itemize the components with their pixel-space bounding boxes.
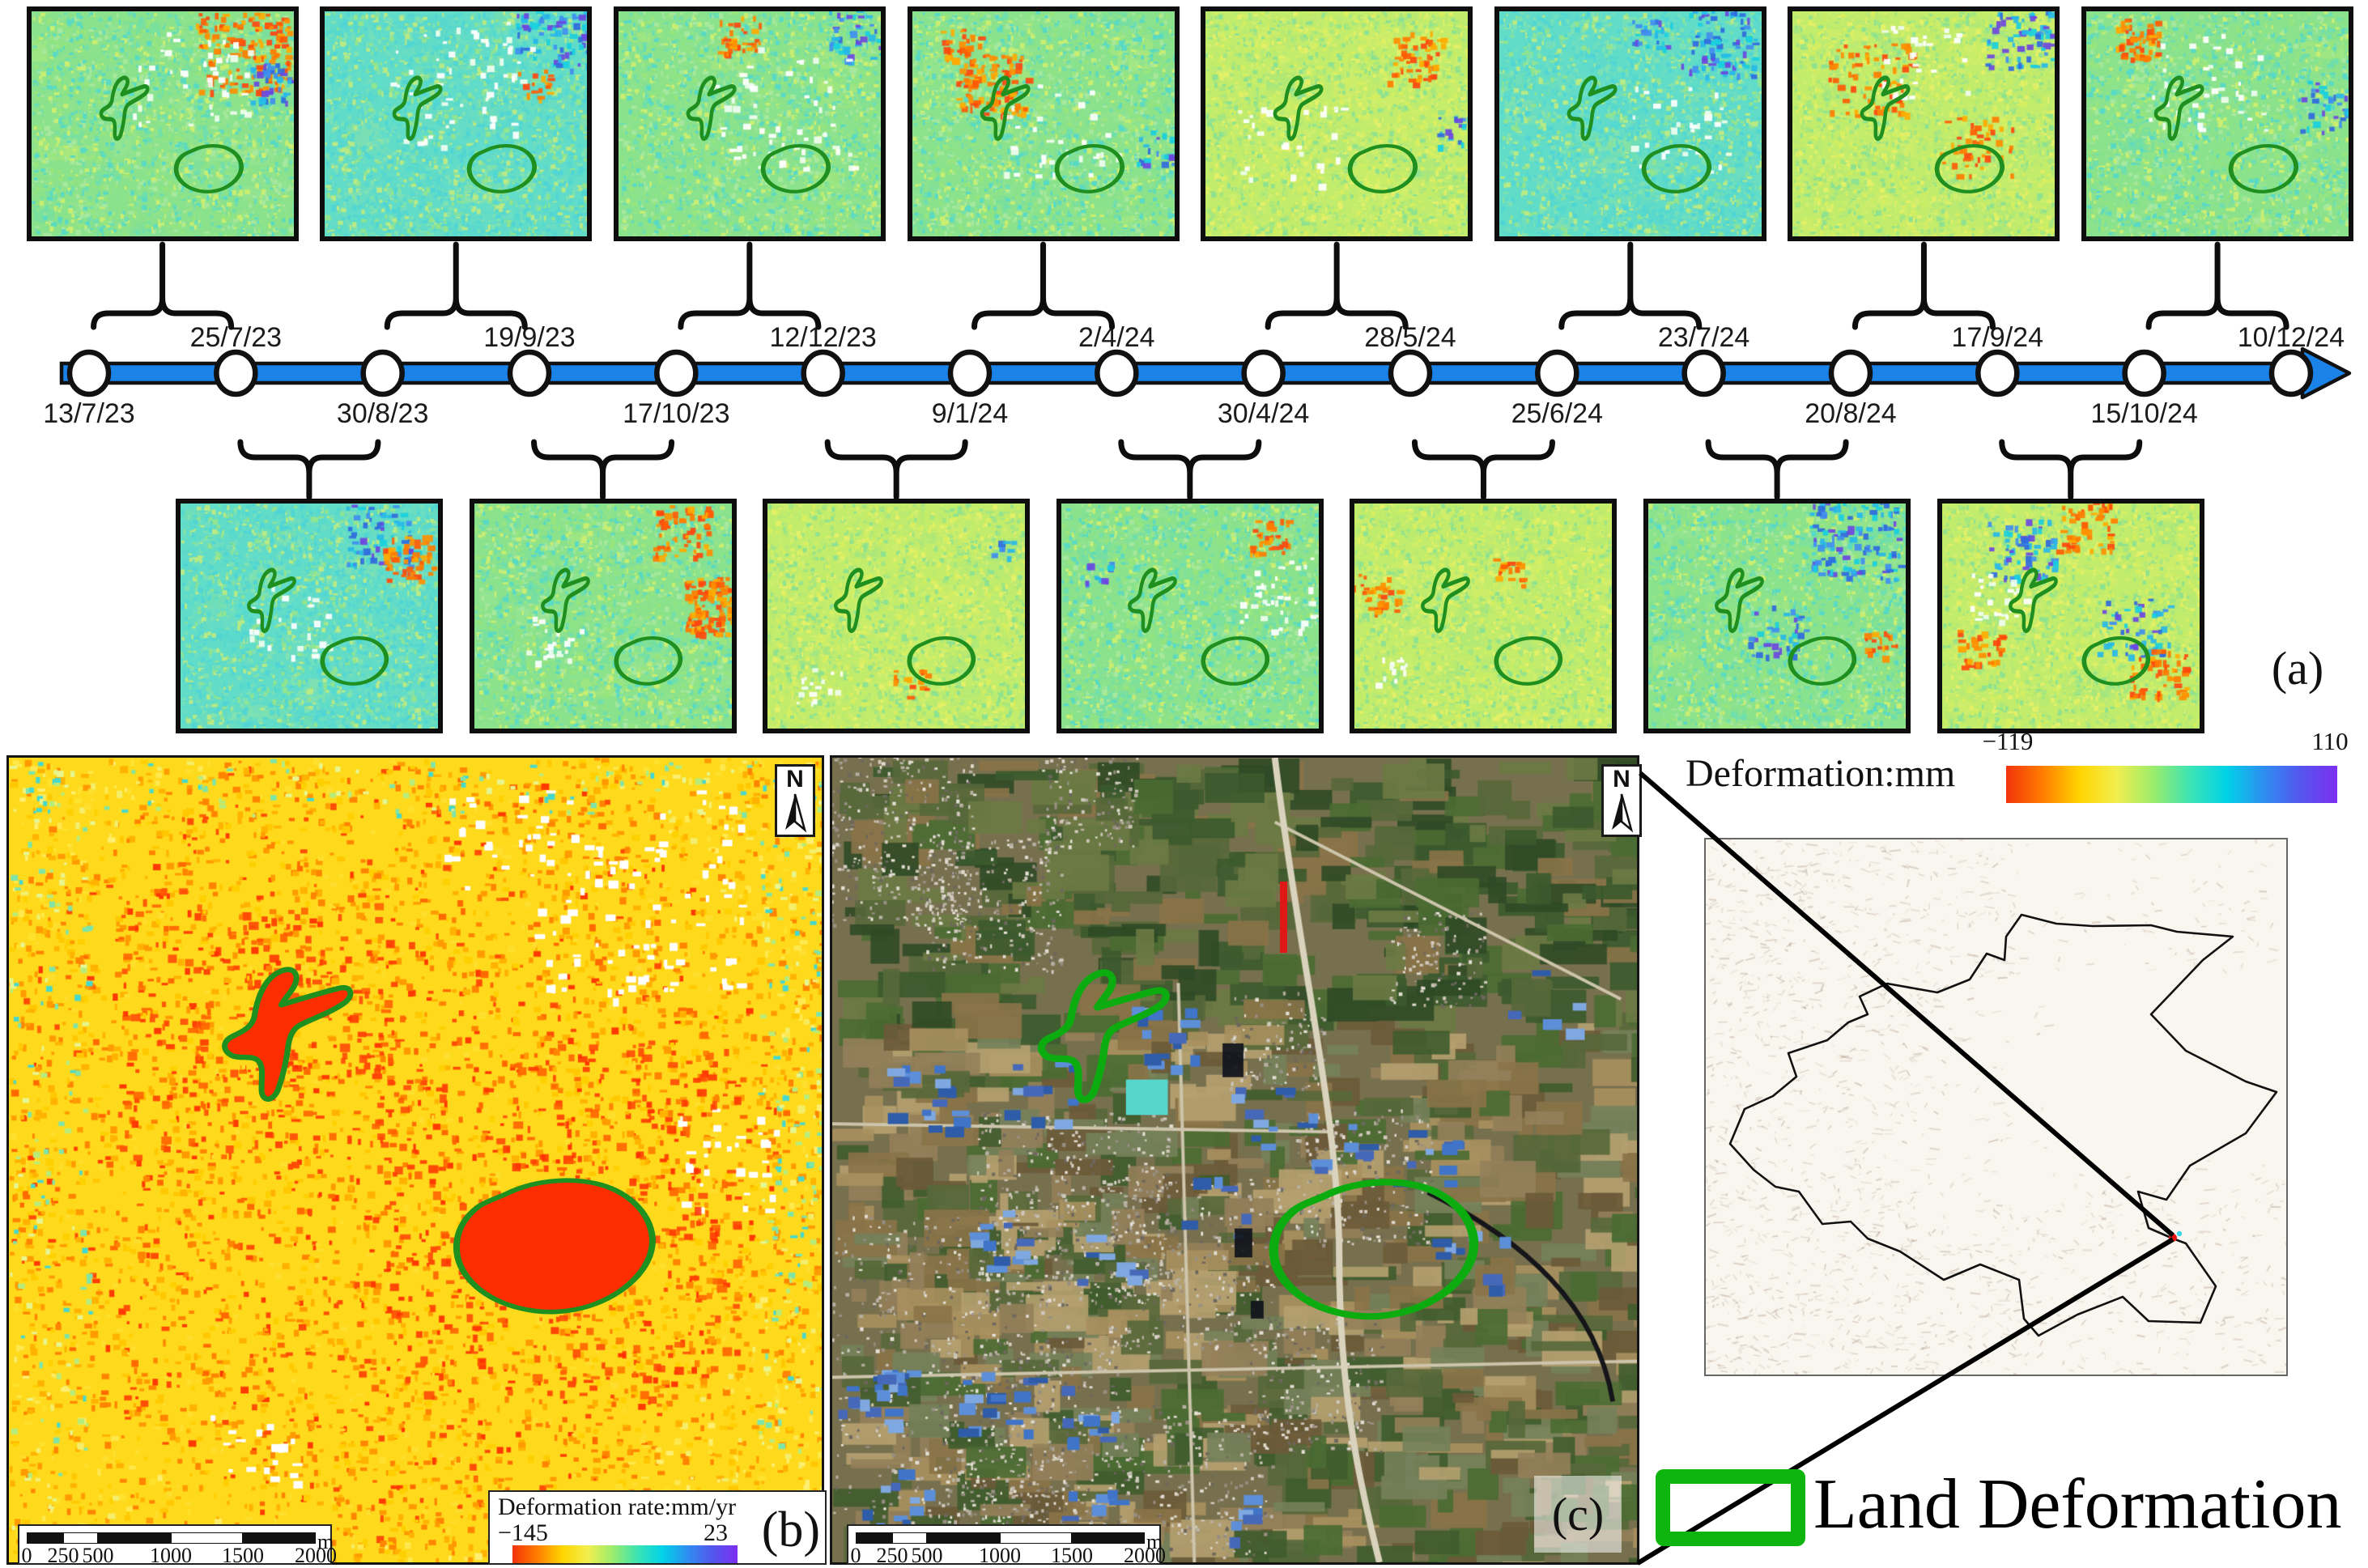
timeline-date: 13/7/23	[8, 398, 170, 430]
north-arrow-icon	[1605, 792, 1638, 833]
timeline-date: 25/7/23	[155, 322, 317, 354]
timeline-date: 17/10/23	[595, 398, 757, 430]
study-area-dot	[2169, 1234, 2177, 1242]
interferogram-map-top	[908, 6, 1180, 241]
brace-bottom	[2002, 442, 2140, 497]
interferogram-map-top	[1494, 6, 1766, 241]
scalebar-tick: 2000	[283, 1544, 348, 1568]
timeline-node	[1244, 352, 1283, 394]
deformation-outlines	[325, 11, 587, 236]
scale-bar: 0250500100015002000m	[18, 1524, 332, 1565]
scalebar-segment	[856, 1532, 892, 1544]
deformation-outlines	[832, 758, 1637, 1562]
interferogram-map-bottom	[1937, 499, 2204, 733]
brace-top	[387, 244, 525, 327]
deformation-outlines	[1792, 11, 2055, 236]
north-arrow-box: N	[775, 764, 815, 837]
interferogram-map-top	[614, 6, 886, 241]
brace-bottom	[534, 442, 672, 497]
timeline-date: 15/10/24	[2064, 398, 2226, 430]
timeline-node	[70, 352, 108, 394]
scalebar-tick: 1000	[138, 1544, 203, 1568]
scalebar-segment	[892, 1532, 927, 1544]
timeline-node	[1978, 352, 2017, 394]
panel-c-label: (c)	[1534, 1476, 1622, 1553]
panel-a-label: (a)	[2241, 641, 2354, 695]
interferogram-map-bottom	[763, 499, 1030, 733]
deformation-outlines	[1061, 504, 1319, 729]
scalebar-tick: 500	[895, 1544, 959, 1568]
timeline-date: 17/9/24	[1916, 322, 2078, 354]
red-route-marker	[1280, 882, 1287, 953]
scalebar-tick: 500	[66, 1544, 130, 1568]
scalebar-segment	[171, 1532, 243, 1544]
scalebar-segment	[27, 1532, 63, 1544]
rate-legend-box: Deformation rate:mm/yr −145 23 (b)	[488, 1490, 827, 1565]
deformation-outlines	[912, 11, 1175, 236]
timeline-node	[1537, 352, 1576, 394]
timeline-node	[657, 352, 695, 394]
interferogram-map-bottom	[470, 499, 737, 733]
timeline-node	[1391, 352, 1430, 394]
insar-time-series-figure: Deformation:mm −119 110 N 02505001000150…	[0, 0, 2368, 1568]
timeline-node	[363, 352, 402, 394]
brace-top	[1562, 244, 1699, 327]
scalebar-segment	[1000, 1532, 1072, 1544]
panel-b-label: (b)	[762, 1502, 820, 1559]
deformation-outlines	[1354, 504, 1612, 729]
deformation-outlines	[181, 504, 438, 729]
deformation-outlines	[767, 504, 1025, 729]
brace-top	[1855, 244, 1992, 327]
province-border	[1730, 915, 2277, 1336]
deformation-outlines	[619, 11, 881, 236]
interferogram-map-top	[1788, 6, 2060, 241]
scalebar-segment	[1072, 1532, 1145, 1544]
interferogram-map-top	[2081, 6, 2353, 241]
timeline-node	[1831, 352, 1870, 394]
interferogram-map-bottom	[1056, 499, 1324, 733]
colorbar-gradient	[2006, 766, 2337, 803]
timeline-date: 30/4/24	[1183, 398, 1345, 430]
scalebar-segment	[98, 1532, 171, 1544]
timeline-node	[1685, 352, 1724, 394]
scalebar-tick: 1500	[210, 1544, 275, 1568]
interferogram-map-top	[1201, 6, 1473, 241]
timeline-bar	[62, 363, 2302, 383]
north-label: N	[786, 767, 804, 792]
scalebar-segment	[927, 1532, 1000, 1544]
timeline-node	[2272, 352, 2311, 394]
rate-legend-gradient	[512, 1545, 738, 1563]
timeline-arrowhead	[2302, 349, 2349, 397]
rate-legend-title: Deformation rate:mm/yr	[498, 1494, 736, 1521]
brace-top	[1268, 244, 1405, 327]
brace-top	[94, 244, 232, 327]
timeline-date: 19/9/23	[449, 322, 610, 354]
timeline-node	[2125, 352, 2164, 394]
timeline-date: 23/7/24	[1623, 322, 1785, 354]
study-area-secondary-dot	[2177, 1231, 2182, 1236]
scalebar-unit: m	[1146, 1530, 1163, 1554]
deformation-outlines	[1942, 504, 2200, 729]
deformation-outlines	[9, 758, 822, 1562]
interferogram-map-top	[27, 6, 299, 241]
land-deformation-swatch	[1656, 1469, 1805, 1546]
timeline-node	[510, 352, 549, 394]
timeline-node	[950, 352, 989, 394]
deformation-outlines	[2086, 11, 2349, 236]
colorbar-max-value: 110	[2289, 727, 2368, 756]
timeline-node	[1097, 352, 1136, 394]
deformation-outlines	[474, 504, 732, 729]
deformation-outlines	[1499, 11, 1762, 236]
scalebar-tick: 2000	[1112, 1544, 1177, 1568]
deformation-outlines	[32, 11, 294, 236]
land-deformation-label: Land Deformation	[1813, 1464, 2341, 1545]
north-arrow-box: N	[1601, 764, 1642, 837]
scalebar-tick: 1000	[967, 1544, 1032, 1568]
brace-bottom	[240, 442, 378, 497]
scalebar-segment	[63, 1532, 98, 1544]
brace-top	[975, 244, 1112, 327]
scale-bar: 0250500100015002000m	[847, 1524, 1161, 1565]
timeline-date: 30/8/23	[302, 398, 464, 430]
timeline-node	[804, 352, 843, 394]
timeline-node	[216, 352, 255, 394]
brace-bottom	[1414, 442, 1552, 497]
rate-legend-min: −145	[498, 1519, 548, 1547]
brace-top	[2149, 244, 2286, 327]
timeline-date: 12/12/23	[742, 322, 904, 354]
timeline-date: 9/1/24	[889, 398, 1051, 430]
brace-bottom	[1708, 442, 1846, 497]
brace-top	[681, 244, 818, 327]
timeline-date: 10/12/24	[2210, 322, 2368, 354]
scalebar-segment	[243, 1532, 316, 1544]
deformation-outlines	[1205, 11, 1468, 236]
panel-c-satellite-map: N 0250500100015002000m (c)	[830, 755, 1639, 1565]
north-label: N	[1613, 767, 1630, 792]
interferogram-map-bottom	[1643, 499, 1911, 733]
colorbar-title: Deformation:mm	[1686, 751, 1955, 796]
scalebar-tick: 1500	[1039, 1544, 1104, 1568]
deformation-outlines	[1648, 504, 1906, 729]
interferogram-map-bottom	[176, 499, 443, 733]
brace-bottom	[827, 442, 965, 497]
panel-b-deformation-rate-map: N 0250500100015002000m Deformation rate:…	[6, 755, 824, 1565]
province-inset-map	[1704, 838, 2288, 1376]
timeline-date: 28/5/24	[1329, 322, 1491, 354]
brace-bottom	[1121, 442, 1259, 497]
province-outline-overlay	[1706, 839, 2286, 1375]
scalebar-unit: m	[317, 1530, 334, 1554]
timeline-date: 2/4/24	[1035, 322, 1197, 354]
interferogram-map-bottom	[1350, 499, 1617, 733]
north-arrow-icon	[779, 792, 811, 833]
timeline-date: 20/8/24	[1770, 398, 1932, 430]
timeline-date: 25/6/24	[1476, 398, 1638, 430]
interferogram-map-top	[320, 6, 592, 241]
rate-legend-max: 23	[704, 1519, 728, 1547]
